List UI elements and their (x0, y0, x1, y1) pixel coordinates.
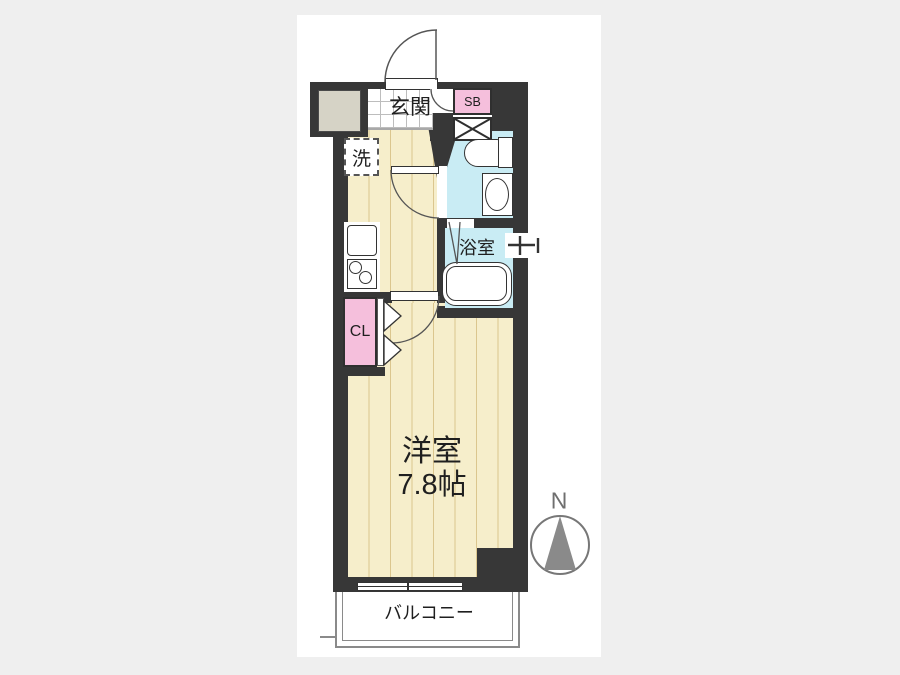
sliding-window (357, 582, 463, 591)
balcony-label: バルコニー (384, 599, 474, 625)
closet-bifold-door-icon (384, 335, 401, 365)
window-center-line (358, 586, 462, 587)
entrance-label: 玄関 (389, 91, 431, 121)
balcony-tick (320, 636, 335, 638)
shoe-box-door-arc (431, 89, 453, 111)
closet-bifold-door-icon (384, 301, 401, 331)
entrance-door-swing-arc (385, 30, 437, 82)
window-divider (407, 583, 409, 590)
room-size-label: 7.8帖 (397, 461, 466, 503)
washroom-door-arc (391, 170, 439, 218)
floorplan-page: SB 洗 CL (0, 0, 900, 675)
bathroom-label: 浴室 (459, 234, 495, 260)
north-label: N (551, 488, 568, 515)
plan-symbols (0, 0, 900, 675)
room-door-arc (392, 296, 439, 343)
